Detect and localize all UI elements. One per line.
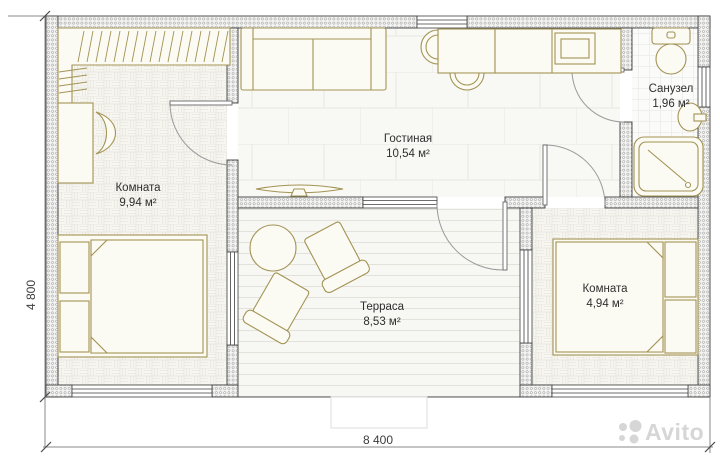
wall-bottom-right-b: [688, 385, 710, 397]
window-bathroom-east: [698, 67, 710, 107]
dimension-width-label: 8 400: [363, 433, 393, 447]
window-bedroom-right-terrace: [520, 250, 532, 343]
window-bedroom-left-terrace: [227, 252, 238, 345]
wall-left: [46, 16, 58, 397]
desk-icon: [58, 103, 93, 183]
room-name: Гостиная: [384, 132, 432, 147]
room-name: Комната: [582, 282, 627, 297]
wall-bottom-right-a: [520, 385, 552, 397]
room-name: Санузел: [649, 82, 694, 97]
floor-plan-drawing: [0, 0, 720, 458]
wall-bottom-left-a: [46, 385, 72, 397]
room-area: 8,53 м²: [360, 315, 404, 330]
entrance-step-icon: [331, 397, 427, 428]
wall-living-terrace-b: [505, 197, 545, 208]
room-area: 9,94 м²: [115, 196, 160, 211]
wall-top-left: [46, 16, 417, 28]
window-top: [417, 16, 467, 28]
wall-bathroom-bedroom: [605, 197, 698, 208]
avito-watermark: Avito: [612, 418, 704, 446]
wall-bathroom-left-upper: [620, 28, 632, 70]
dining-table-icon: [438, 29, 495, 73]
wall-living-terrace-a: [238, 197, 363, 208]
sofa-icon: [241, 28, 386, 90]
avito-logo-icon: [612, 418, 642, 446]
room-area: 4,94 м²: [582, 297, 627, 312]
wall-room-right-upper: [520, 208, 532, 250]
room-label-right: Комната 4,94 м²: [582, 282, 627, 312]
wall-room-left-mid: [227, 160, 238, 252]
wall-room-right-lower: [520, 343, 532, 385]
room-area: 10,54 м²: [384, 147, 432, 162]
room-area: 1,96 м²: [649, 97, 694, 112]
wall-bottom-left-b: [212, 385, 238, 397]
room-name: Комната: [115, 181, 160, 196]
room-name: Терраса: [360, 300, 404, 315]
double-bed-left-icon: [58, 235, 207, 357]
avito-watermark-text: Avito: [645, 419, 704, 445]
room-label-bathroom: Санузел 1,96 м²: [649, 82, 694, 112]
kitchen-counter-icon: [495, 29, 621, 73]
dimension-height-label: 4 800: [24, 280, 38, 310]
floor-plan: Комната 9,94 м² Гостиная 10,54 м² Санузе…: [0, 0, 720, 458]
room-label-left: Комната 9,94 м²: [115, 181, 160, 211]
coffee-table-icon: [250, 225, 296, 271]
room-label-terrace: Терраса 8,53 м²: [360, 300, 404, 330]
wall-top-right: [467, 16, 710, 28]
shower-icon: [634, 137, 703, 196]
wall-room-left-lower: [227, 345, 238, 385]
wall-bathroom-left-lower: [620, 122, 632, 197]
window-living-terrace: [363, 197, 437, 208]
room-label-living: Гостиная 10,54 м²: [384, 132, 432, 162]
wall-right-upper: [698, 16, 710, 67]
window-bedroom-right-south: [552, 385, 688, 397]
window-bedroom-left-south: [72, 385, 212, 397]
